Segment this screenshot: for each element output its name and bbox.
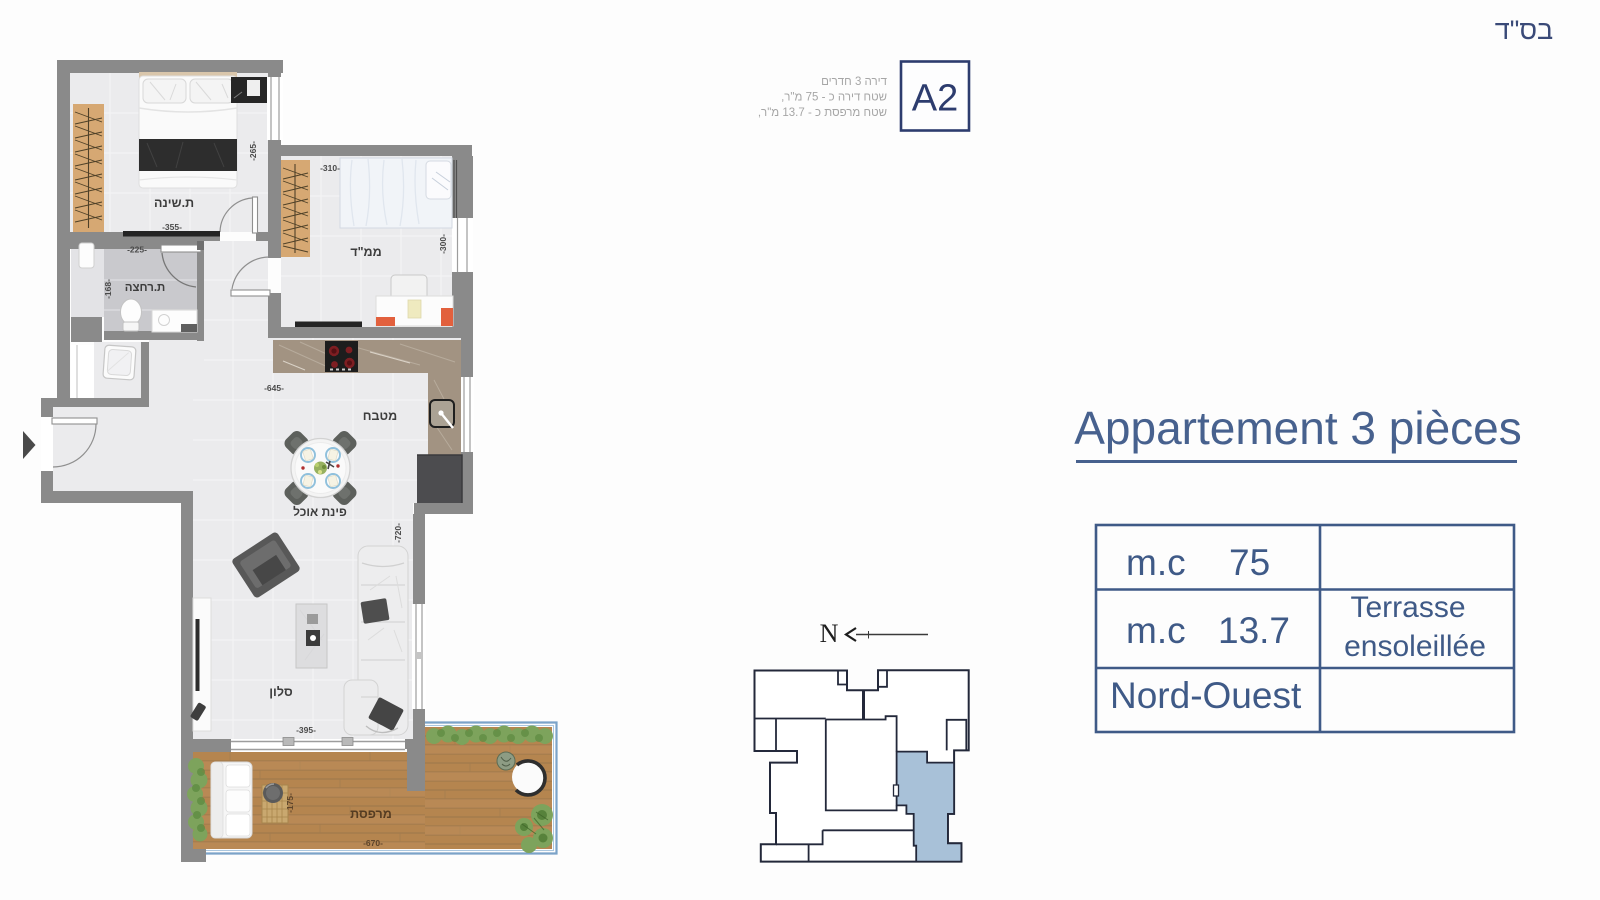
svg-text:m.c: m.c [1126,542,1186,583]
svg-text:Terrasse: Terrasse [1350,591,1465,624]
svg-text:-355-: -355- [162,222,182,232]
svg-text:-720-: -720- [393,523,403,543]
svg-text:ת.שינה: ת.שינה [154,196,194,210]
svg-text:75: 75 [1229,542,1270,583]
svg-text:בס"ד: בס"ד [1495,15,1553,45]
svg-text:Nord-Ouest: Nord-Ouest [1110,675,1302,716]
svg-text:-395-: -395- [296,725,316,735]
svg-text:-670-: -670- [363,838,383,848]
svg-text:-645-: -645- [264,383,284,393]
svg-text:-225-: -225- [127,245,147,255]
svg-text:שטח דירה כ - 75 מ"ר,: שטח דירה כ - 75 מ"ר, [781,92,887,104]
svg-text:-300-: -300- [438,234,448,254]
svg-text:סלון: סלון [269,685,293,699]
svg-text:-310-: -310- [320,163,340,173]
svg-text:מרפסת: מרפסת [350,807,392,821]
svg-text:N: N [820,619,839,648]
svg-text:Appartement 3 pièces: Appartement 3 pièces [1074,402,1522,454]
svg-text:דירה 3 חדרים: דירה 3 חדרים [821,76,888,88]
svg-text:ensoleillée: ensoleillée [1344,630,1486,663]
svg-text:-175-: -175- [285,793,295,813]
svg-text:A2: A2 [912,78,958,120]
svg-text:m.c: m.c [1126,610,1186,651]
svg-text:פינת אוכל: פינת אוכל [293,505,347,519]
svg-text:-168-: -168- [103,279,113,299]
svg-text:ממ"ד: ממ"ד [350,245,381,259]
svg-text:ת.רחצה: ת.רחצה [125,282,166,294]
svg-text:13.7: 13.7 [1218,610,1290,651]
svg-text:-265-: -265- [248,141,258,161]
svg-text:שטח מרפסת כ - 13.7 מ"ר,: שטח מרפסת כ - 13.7 מ"ר, [758,107,887,119]
svg-text:מטבח: מטבח [363,409,397,423]
